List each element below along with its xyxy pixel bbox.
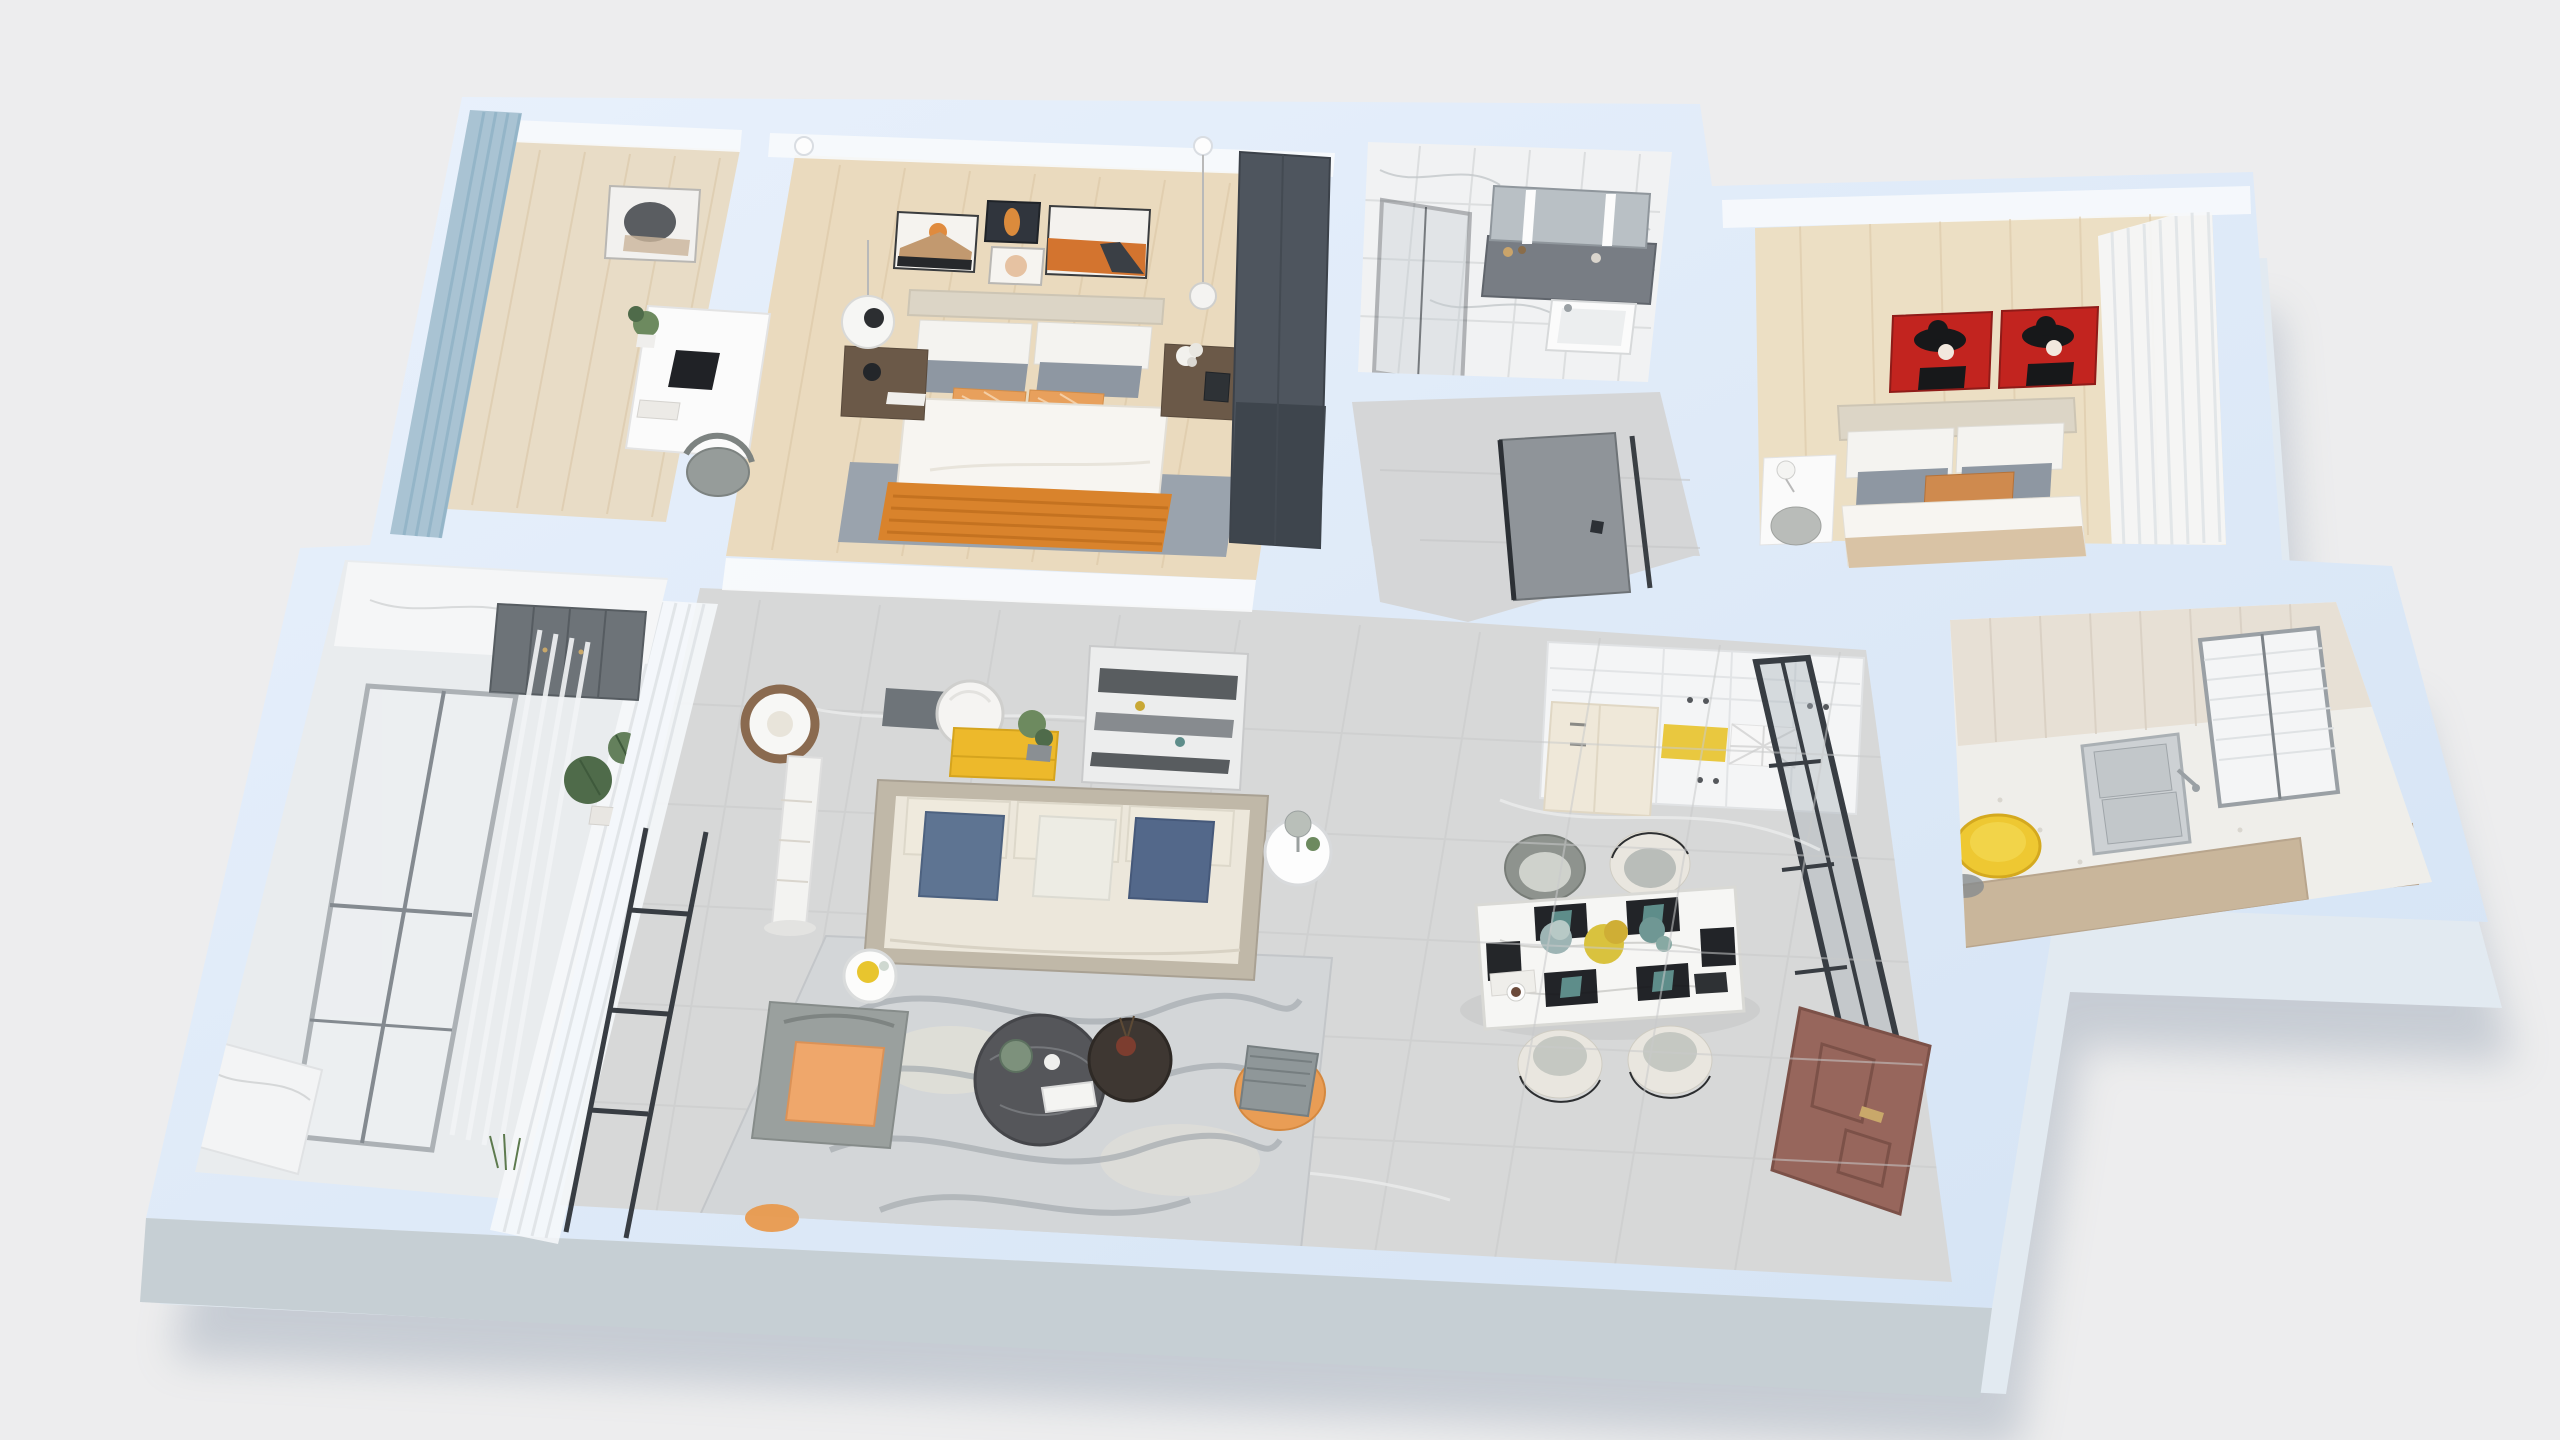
coffee-table-small [1089, 1016, 1171, 1101]
pillow-white [1034, 322, 1152, 369]
sofa [864, 780, 1268, 980]
pillow-white-middle [1033, 816, 1116, 900]
orange-stool-edge [745, 1204, 799, 1232]
dining-table [1476, 887, 1744, 1029]
study-ceiling-light [795, 137, 813, 155]
floor-plan-render [0, 0, 2560, 1440]
coffee-table-main [975, 1015, 1105, 1145]
study-wall-art [605, 186, 700, 262]
desk-lamp [1777, 461, 1795, 479]
pillow-white [916, 320, 1032, 366]
nightstand-right [1161, 343, 1238, 420]
door-handle [1590, 520, 1604, 534]
photo-frame [1204, 372, 1230, 402]
wardrobe [1230, 152, 1330, 548]
nightstand-left [841, 346, 928, 420]
orange-pouf [1235, 1046, 1325, 1130]
mirror-cabinet [1490, 186, 1650, 248]
pillow-blue-right [1129, 818, 1214, 902]
books [1042, 1082, 1096, 1112]
sink [1546, 300, 1636, 354]
yellow-stool [1956, 815, 2040, 877]
vase [1116, 1036, 1136, 1056]
bedroom2-desk [1760, 455, 1836, 545]
stool [1771, 507, 1821, 545]
pillow-blue-left [919, 812, 1004, 900]
armchair-cushion [786, 1042, 884, 1126]
red-art-1 [1890, 312, 1992, 392]
window-blinds [2200, 628, 2338, 806]
bowl [1044, 1054, 1060, 1070]
tray [1694, 972, 1728, 994]
yellow-plate [857, 961, 879, 983]
fridge [1544, 702, 1658, 816]
desk-books [637, 400, 680, 420]
armchair [752, 1002, 908, 1148]
master-bed [878, 290, 1172, 552]
bedroom2-bed [1838, 398, 2086, 568]
shower-enclosure [1374, 200, 1470, 386]
table-plant [1000, 1040, 1032, 1072]
small-round-table [844, 950, 896, 1002]
red-art-2 [1999, 307, 2098, 388]
laptop [668, 350, 720, 390]
leaning-art [1082, 646, 1248, 790]
yellow-niche [1661, 724, 1728, 762]
